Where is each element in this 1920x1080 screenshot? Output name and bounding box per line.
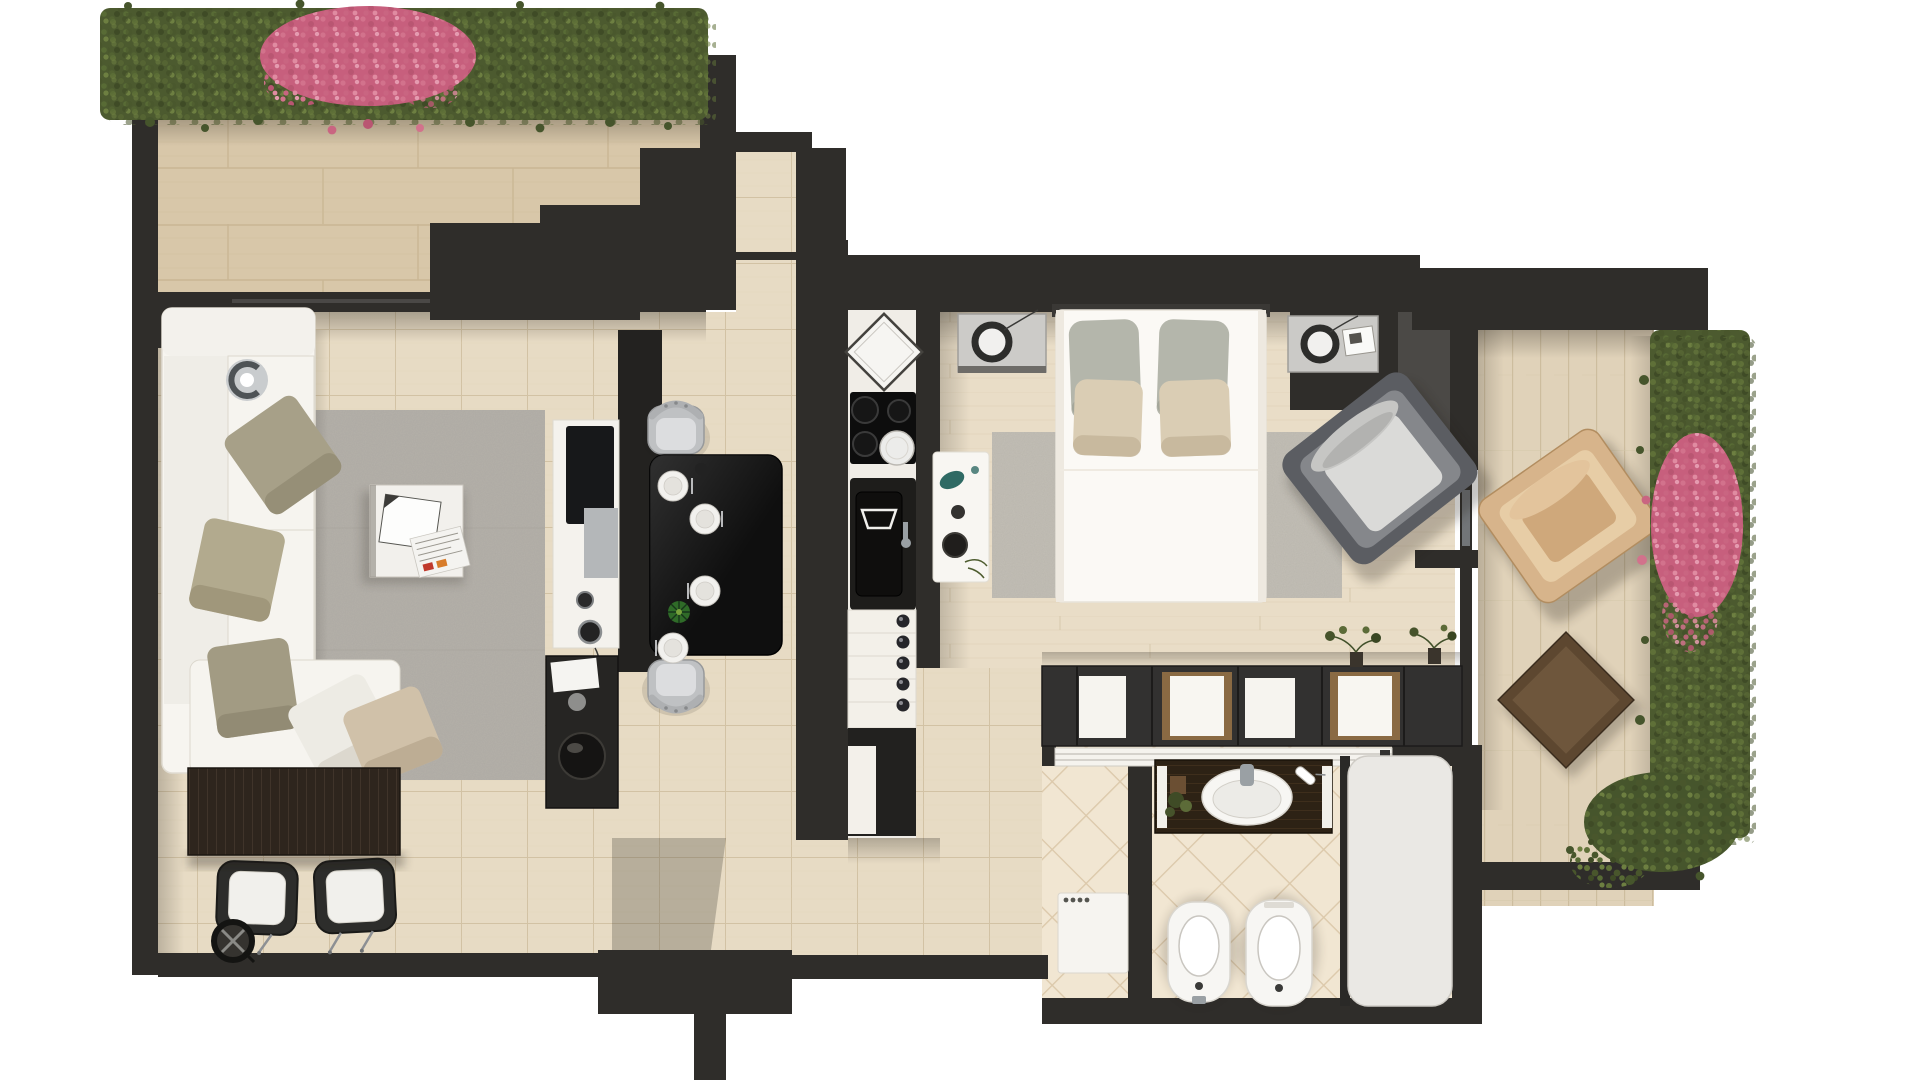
cooktop — [850, 392, 916, 465]
kitchen-strip — [846, 310, 922, 838]
bathtub: ect/> — [1340, 756, 1452, 1006]
double-bed — [1052, 304, 1270, 602]
duvet-edge-left — [1056, 310, 1064, 602]
wall-hall-bottom — [792, 955, 1048, 979]
plate-3 — [690, 576, 720, 606]
dark-bowl — [559, 733, 605, 779]
wall-bath-partition — [1128, 766, 1152, 1012]
dining-chair-top — [648, 401, 704, 454]
tv-lowboard — [553, 420, 619, 670]
bidet — [1161, 896, 1237, 1004]
round-fan-clock — [214, 922, 254, 962]
hedge-top — [100, 0, 716, 134]
teal-small — [971, 466, 979, 474]
hall-floor-a — [796, 840, 848, 958]
ring-lamp-right — [1304, 328, 1336, 360]
book-photo — [1349, 333, 1362, 345]
toilet-seat — [1258, 916, 1300, 980]
media-shelf-cabinet — [546, 656, 618, 808]
pink-flower-top — [260, 6, 476, 108]
white-plate — [880, 431, 914, 465]
terrace-right-wall-shadow — [1478, 330, 1504, 810]
pillow-pair-left — [1068, 319, 1143, 457]
wall-bath-right — [1452, 745, 1482, 1024]
papers — [550, 658, 599, 693]
ring-lamp-left — [975, 325, 1009, 359]
floor-plan-canvas: ect/> — [0, 0, 1920, 1080]
sideboard — [188, 768, 400, 855]
burner-1 — [852, 397, 878, 423]
wall-left-outer — [132, 82, 158, 975]
terrace-right-top-shadow — [1478, 330, 1654, 358]
burner-2 — [888, 400, 910, 422]
speaker-small — [577, 592, 593, 608]
wall-terrace-se-block — [640, 148, 736, 310]
storage-box-white-1 — [1079, 676, 1126, 738]
entry-stub — [694, 1014, 726, 1080]
towel-left — [1157, 766, 1167, 828]
pillow-pair-right — [1156, 319, 1231, 457]
tub-outer — [1348, 756, 1452, 1006]
toilet-hinge — [1264, 902, 1294, 908]
wall-stub-mid — [1415, 550, 1478, 568]
dark-cup — [951, 505, 965, 519]
floor-plan-svg: ect/> — [0, 0, 1920, 1080]
nightstand-left-edge — [958, 366, 1046, 373]
vestibule-threshold — [736, 252, 796, 260]
dining-chair-bottom — [648, 660, 704, 713]
decor-ring — [226, 359, 268, 401]
cup — [695, 463, 707, 475]
storage-box-brown-2 — [1330, 672, 1400, 740]
kitchen-drawers — [848, 610, 916, 728]
entry-door-block — [598, 950, 792, 1014]
coffee-table — [362, 485, 470, 584]
dark-vase — [943, 533, 967, 557]
accessory-table — [933, 452, 989, 582]
toilet-drain — [1275, 984, 1283, 992]
wall-bath-door-cap-left — [1042, 745, 1056, 766]
faucet-base — [901, 538, 911, 548]
kitchen-sink-unit — [850, 478, 916, 610]
storage-box-white-2 — [1245, 678, 1295, 738]
washing-machine — [1058, 893, 1128, 973]
wall-mass-a — [430, 223, 640, 320]
sink-bowl — [856, 492, 902, 596]
bidet-basin — [1179, 916, 1219, 976]
nightstand-left — [958, 310, 1046, 373]
vestibule-floor — [736, 150, 796, 312]
vanity — [1155, 758, 1332, 833]
vanity-faucet — [1240, 764, 1254, 786]
small-bowl — [568, 693, 586, 711]
wall-vestibule-right — [796, 148, 846, 240]
plate-4 — [658, 633, 688, 663]
plate-2 — [690, 504, 720, 534]
coffee-table-edge — [370, 485, 376, 577]
sofa-armrest-top — [162, 308, 315, 356]
wall-kitchen-left — [796, 240, 848, 840]
bidet-drain — [1195, 982, 1203, 990]
toilet — [1239, 894, 1319, 1006]
burner-3 — [853, 432, 877, 456]
hall-floor-c — [916, 668, 1042, 958]
nightstand-right — [1288, 316, 1378, 372]
book — [1342, 326, 1375, 356]
plate-1 — [658, 471, 688, 501]
speaker-large — [579, 621, 601, 643]
bowl-highlight — [567, 743, 583, 753]
wall-mass-b — [540, 205, 640, 227]
green-centerpiece — [668, 601, 690, 623]
pillow-olive-3 — [206, 637, 300, 740]
kitchen-base-shadow — [848, 838, 940, 864]
tv-shelf — [584, 508, 618, 578]
storage-box-brown-1 — [1162, 672, 1232, 740]
bidet-tap — [1192, 996, 1206, 1004]
kitchen-base-door — [848, 746, 876, 834]
duvet-edge-right — [1258, 310, 1266, 602]
